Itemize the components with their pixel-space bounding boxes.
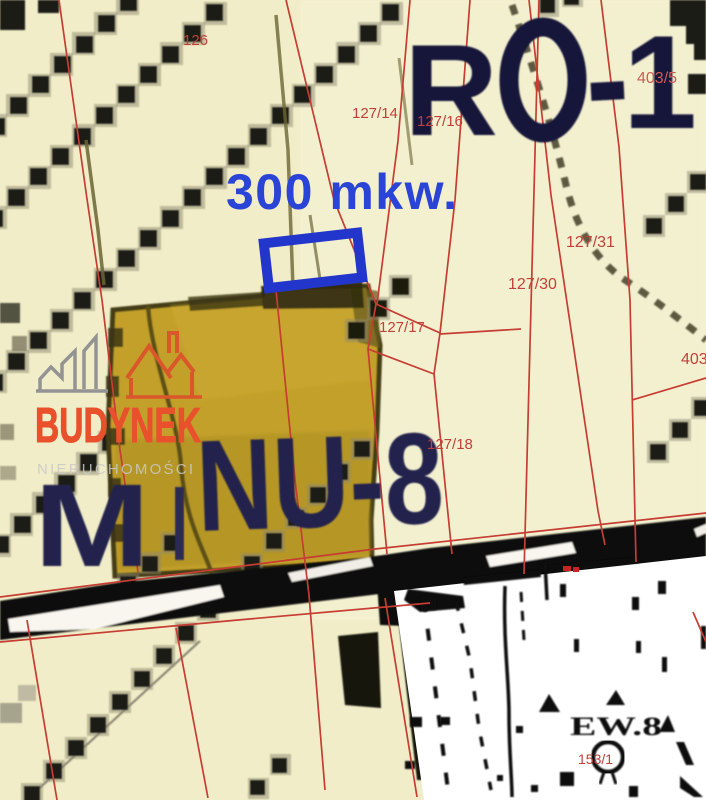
svg-text:R: R	[404, 17, 498, 163]
svg-text:127/14: 127/14	[352, 105, 398, 122]
svg-text:127/17: 127/17	[379, 319, 425, 336]
svg-text:127/16: 127/16	[417, 113, 463, 130]
svg-text:403/5: 403/5	[637, 70, 677, 87]
svg-text:127/18: 127/18	[427, 436, 473, 453]
svg-text:NU-8: NU-8	[194, 404, 446, 559]
svg-text:M: M	[34, 460, 150, 592]
svg-text:126: 126	[183, 32, 208, 49]
svg-text:127/31: 127/31	[566, 234, 615, 251]
svg-text:127/30: 127/30	[508, 276, 557, 293]
svg-text:300 mkw.: 300 mkw.	[226, 164, 459, 220]
svg-text:NIERUCHOMOŚCI: NIERUCHOMOŚCI	[37, 460, 195, 478]
svg-text:BUDYNEK: BUDYNEK	[35, 399, 201, 453]
svg-text:403: 403	[681, 351, 706, 368]
svg-text:153/1: 153/1	[578, 751, 613, 767]
svg-text:EW.8: EW.8	[570, 712, 662, 741]
